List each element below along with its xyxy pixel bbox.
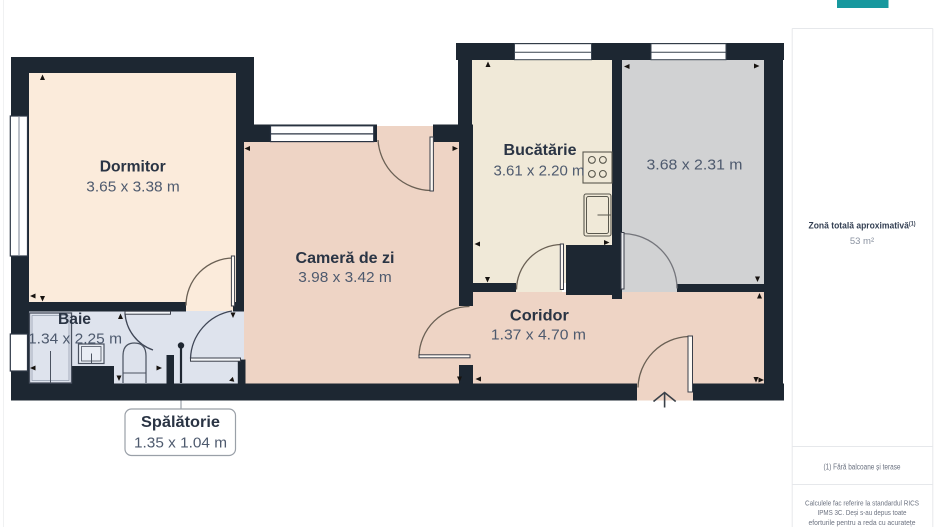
svg-text:1.34 x 2.25 m: 1.34 x 2.25 m	[28, 331, 122, 347]
svg-text:Zonă totală aproximativă(1): Zonă totală aproximativă(1)	[809, 220, 916, 231]
svg-text:IPMS 3C. Deși s-au depus toate: IPMS 3C. Deși s-au depus toate	[818, 508, 907, 517]
svg-text:Cameră de zi: Cameră de zi	[296, 250, 395, 267]
svg-text:53 m²: 53 m²	[850, 236, 874, 247]
svg-text:1.35 x 1.04 m: 1.35 x 1.04 m	[134, 436, 227, 452]
svg-text:Spălătorie: Spălătorie	[141, 414, 220, 431]
svg-text:eforturile pentru a reda cu ac: eforturile pentru a reda cu acuratețe	[809, 518, 916, 527]
svg-text:3.68 x 2.31 m: 3.68 x 2.31 m	[647, 158, 743, 174]
svg-text:Bucătărie: Bucătărie	[504, 142, 577, 159]
svg-text:(1) Fără balcoane și terase: (1) Fără balcoane și terase	[824, 463, 901, 472]
svg-text:Coridor: Coridor	[510, 308, 569, 325]
svg-text:3.98 x 3.42 m: 3.98 x 3.42 m	[298, 270, 392, 286]
svg-text:Baie: Baie	[58, 311, 91, 328]
svg-text:3.61 x 2.20 m: 3.61 x 2.20 m	[494, 164, 585, 180]
svg-text:Dormitor: Dormitor	[100, 159, 166, 176]
svg-text:1.37 x 4.70 m: 1.37 x 4.70 m	[491, 328, 586, 344]
svg-text:Calculele fac referire la stan: Calculele fac referire la standardul RIC…	[805, 499, 919, 508]
svg-text:3.65 x 3.38 m: 3.65 x 3.38 m	[86, 180, 180, 196]
